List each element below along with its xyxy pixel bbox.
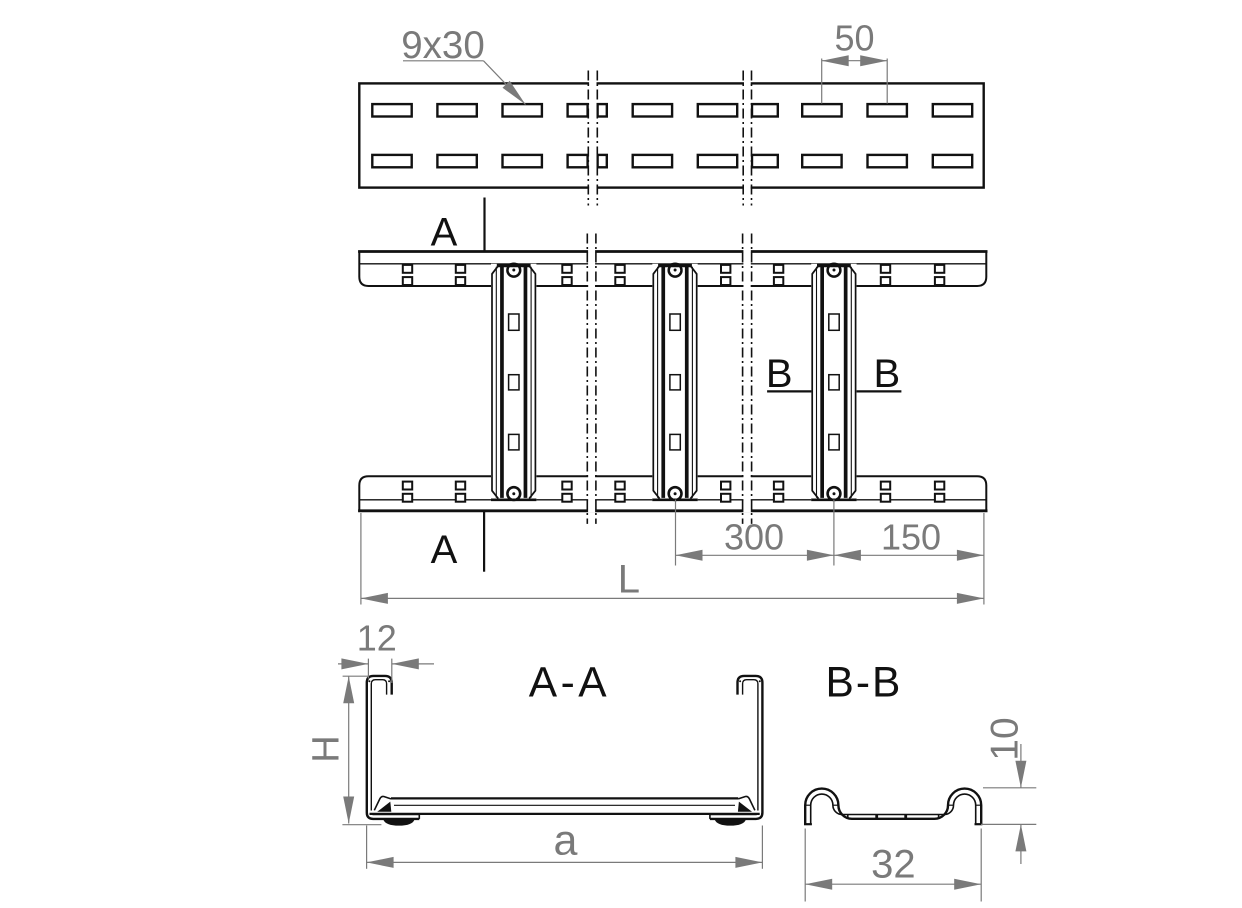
- svg-text:A: A: [431, 528, 458, 572]
- svg-text:A: A: [431, 210, 458, 254]
- svg-text:B: B: [873, 352, 900, 396]
- svg-text:300: 300: [724, 517, 784, 558]
- svg-text:A-A: A-A: [529, 660, 610, 707]
- svg-text:32: 32: [871, 842, 916, 886]
- svg-text:L: L: [618, 558, 640, 602]
- svg-text:a: a: [554, 817, 578, 865]
- svg-text:10: 10: [984, 717, 1027, 760]
- svg-text:150: 150: [881, 517, 941, 558]
- svg-text:B-B: B-B: [825, 660, 902, 707]
- svg-text:12: 12: [357, 617, 397, 658]
- svg-text:B: B: [766, 352, 793, 396]
- svg-text:50: 50: [834, 18, 874, 59]
- svg-text:H: H: [306, 735, 348, 762]
